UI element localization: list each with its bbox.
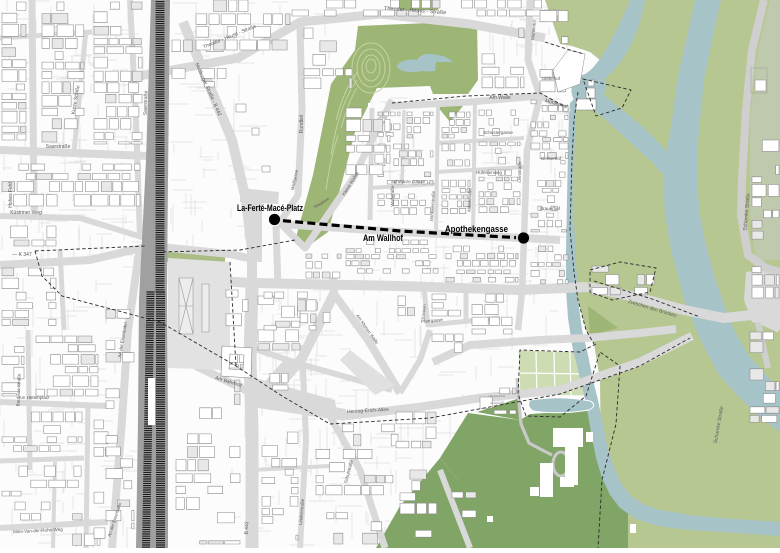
svg-text:Schwarze Gasse: Schwarze Gasse (391, 179, 426, 184)
svg-text:Gerberhof: Gerberhof (541, 156, 562, 161)
svg-text:Rundteil: Rundteil (299, 115, 305, 133)
svg-text:Leinstraße: Leinstraße (517, 161, 523, 183)
svg-text:Hufeisenweg: Hufeisenweg (476, 170, 503, 175)
svg-text:Amtsgericht: Amtsgericht (490, 401, 504, 405)
svg-text:Schustergasse: Schustergasse (483, 130, 513, 135)
svg-text:Giebehof: Giebehof (542, 76, 561, 81)
svg-text:Saarstraße: Saarstraße (143, 90, 150, 115)
svg-text:B 442: B 442 (244, 521, 250, 534)
svg-text:— K 347: — K 347 (12, 252, 32, 258)
svg-text:Wallstraße: Wallstraße (390, 185, 395, 207)
svg-text:Apothekengasse: Apothekengasse (445, 224, 508, 234)
svg-text:Hohes Feld: Hohes Feld (8, 182, 14, 208)
svg-text:Saarstraße: Saarstraße (46, 144, 71, 150)
svg-text:Küstriner Weg: Küstriner Weg (10, 210, 42, 216)
svg-text:La-Ferté-Macé-Platz: La-Ferté-Macé-Platz (237, 203, 303, 213)
svg-text:Lehrerseminar: Lehrerseminar (489, 394, 506, 398)
svg-text:Mittelstraße: Mittelstraße (467, 188, 473, 212)
svg-text:Am Wallhof: Am Wallhof (363, 233, 404, 243)
svg-text:Brauerhof: Brauerhof (540, 206, 561, 211)
svg-text:Am Walle: Am Walle (489, 95, 510, 101)
svg-text:Am Hüttenplatz: Am Hüttenplatz (19, 395, 51, 400)
